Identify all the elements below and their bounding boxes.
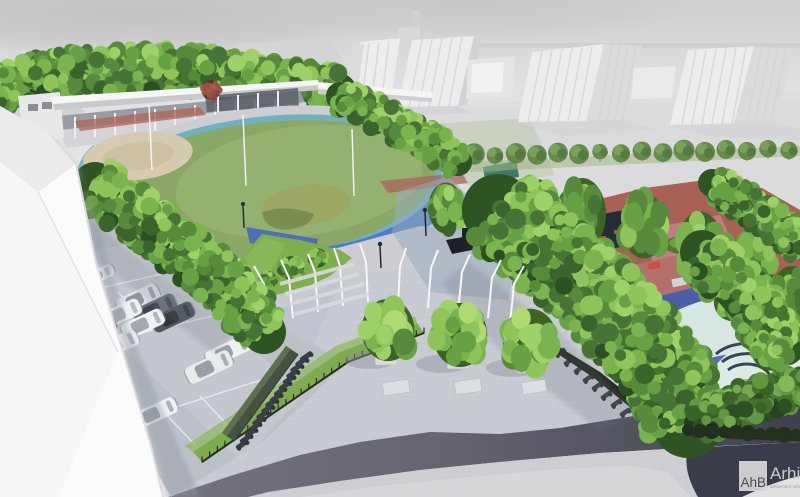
svg-text:arhitectura urbana: arhitectura urbana [770,484,800,489]
svg-text:AhB: AhB [741,475,767,490]
svg-text:Arhi: Arhi [770,464,800,483]
